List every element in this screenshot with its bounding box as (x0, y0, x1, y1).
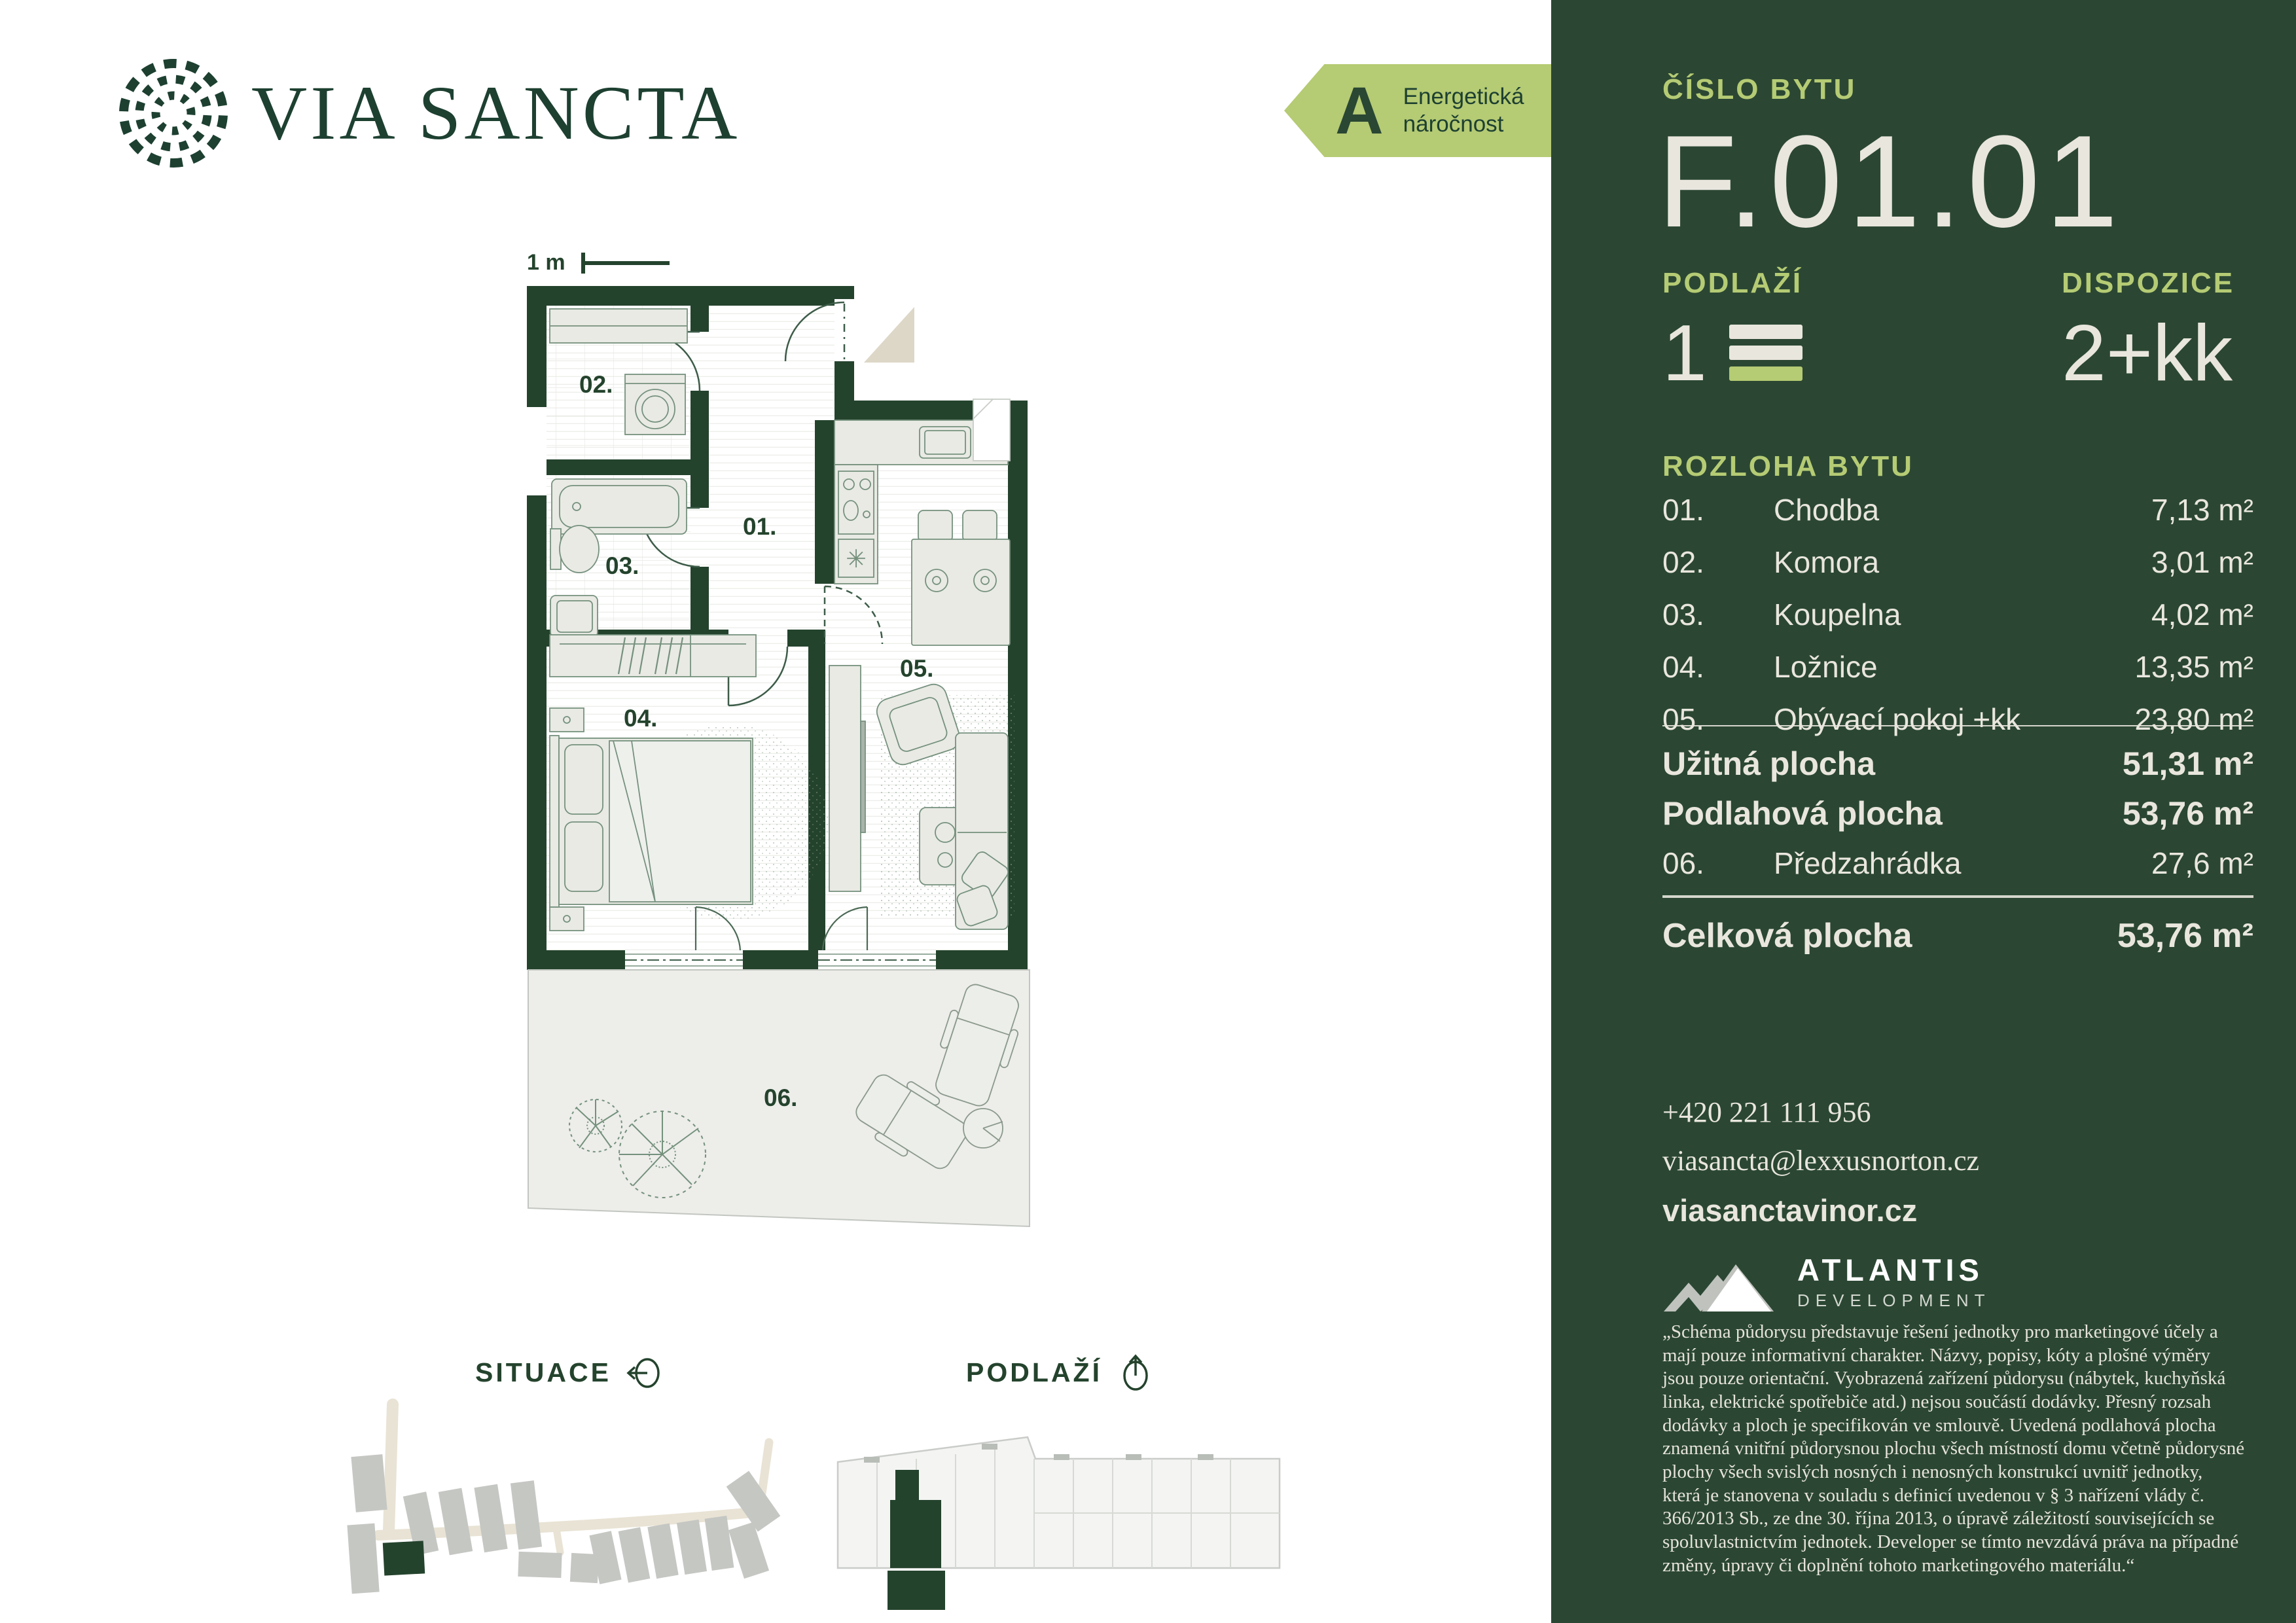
floor-value: 1 (1662, 313, 1707, 393)
developer-name-block: ATLANTIS DEVELOPMENT (1797, 1255, 1991, 1309)
site-plan-header: SITUACE (475, 1353, 664, 1391)
bed-pillow (565, 822, 603, 891)
room-label-03: 03. (605, 552, 639, 579)
dining-table (912, 539, 1010, 645)
brand-name-via: VIA (251, 75, 399, 152)
unit-number: F.01.01 (1657, 116, 2123, 247)
tv (861, 721, 865, 832)
info-panel: ČÍSLO BYTU F.01.01 PODLAŽÍ 1 DISPOZICE 2… (1551, 0, 2296, 1623)
site-plan-svg (340, 1397, 798, 1606)
floor-value-group: 1 (1662, 313, 1803, 393)
phone-link[interactable]: +420 221 111 956 (1662, 1098, 1871, 1127)
svg-text:✳: ✳ (846, 546, 867, 573)
entrance-arrow-icon (864, 307, 914, 363)
nightstand (550, 708, 584, 732)
total-area-row: Celková plocha53,76 m² (1662, 916, 2253, 955)
room-label-04: 04. (624, 705, 657, 732)
energy-rating-badge: A Energetická náročnost (1284, 64, 1552, 157)
nightstand (550, 907, 584, 931)
scale-bar: 1 m (527, 250, 670, 275)
table-row: 05.Obývací pokoj +kk23,80 m² (1662, 702, 2253, 737)
table-row: 04.Ložnice13,35 m² (1662, 649, 2253, 685)
floor-overview-section: PODLAŽÍ (818, 1353, 1302, 1613)
brand-name: VIA SANCTA (251, 75, 740, 152)
site-plan-label: SITUACE (475, 1357, 611, 1388)
floor-area-row: Podlahová plocha53,76 m² (1662, 794, 2253, 832)
table-row: 01.Chodba7,13 m² (1662, 492, 2253, 527)
layout-label: DISPOZICE (2062, 267, 2234, 300)
table-row: 03.Koupelna4,02 m² (1662, 597, 2253, 632)
email-link[interactable]: viasancta@lexxusnorton.cz (1662, 1147, 1979, 1175)
usable-area-row: Užitná plocha51,31 m² (1662, 745, 2253, 783)
energy-label: Energetická náročnost (1403, 83, 1524, 138)
floor-label: PODLAŽÍ (1662, 267, 1803, 300)
bed-headboard (550, 736, 559, 907)
layout-value: 2+kk (2062, 313, 2233, 393)
chair (963, 510, 997, 542)
compass-north-icon (1117, 1353, 1155, 1391)
room-label-01: 01. (743, 513, 776, 540)
via-sancta-circles-icon (118, 58, 229, 169)
room-label-05: 05. (900, 655, 933, 682)
highlighted-building (383, 1541, 425, 1575)
floor-overview-svg (818, 1397, 1302, 1613)
floor-overview-header: PODLAŽÍ (966, 1353, 1155, 1391)
website-link[interactable]: viasanctavinor.cz (1662, 1192, 1917, 1228)
scale-bar-label: 1 m (527, 250, 565, 275)
floor-overview-label: PODLAŽÍ (966, 1357, 1102, 1388)
developer-subtitle: DEVELOPMENT (1797, 1292, 1991, 1309)
room-label-02: 02. (579, 371, 613, 398)
brand-name-sancta: SANCTA (418, 75, 741, 152)
brand-logo: VIA SANCTA (118, 58, 740, 169)
duvet (609, 741, 751, 902)
floor-plan: 1 m (527, 243, 1031, 1255)
garden-area-row: 06.Předzahrádka27,6 m² (1662, 846, 2253, 881)
legal-disclaimer: „Schéma půdorysu představuje řešení jedn… (1662, 1321, 2245, 1577)
divider (1662, 895, 2253, 898)
bed-pillow (565, 745, 603, 814)
room-areas-table: 01.Chodba7,13 m² 02.Komora3,01 m² 03.Kou… (1662, 492, 2253, 737)
floor-plan-svg: 1 m (527, 243, 1031, 1255)
room-label-06: 06. (764, 1084, 797, 1111)
room-areas-label: ROZLOHA BYTU (1662, 450, 1914, 483)
toilet (560, 526, 599, 573)
kitchen-sink (920, 427, 971, 458)
tv-cabinet (829, 666, 861, 891)
compass-west-icon (626, 1353, 664, 1391)
wardrobe (550, 635, 756, 677)
table-row: 02.Komora3,01 m² (1662, 544, 2253, 580)
developer-logo: ATLANTIS DEVELOPMENT (1662, 1249, 1991, 1314)
divider (1662, 725, 2253, 726)
bathtub (552, 479, 687, 534)
floor-level-icon (1729, 325, 1803, 381)
site-plan-section: SITUACE (340, 1353, 798, 1606)
flyer-page: VIA SANCTA A Energetická náročnost (0, 0, 2296, 1623)
atlantis-mountains-icon (1662, 1249, 1780, 1314)
developer-name: ATLANTIS (1797, 1255, 1991, 1285)
energy-grade: A (1335, 77, 1384, 144)
unit-number-label: ČÍSLO BYTU (1662, 73, 1856, 106)
chair (918, 510, 952, 542)
